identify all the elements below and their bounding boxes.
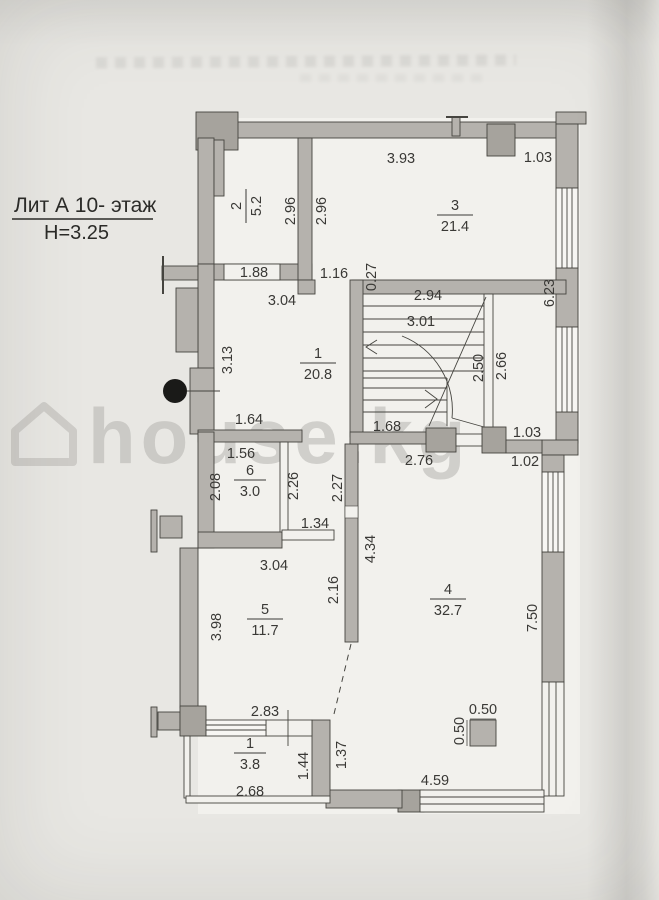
dim-hall-door: 1.16 [320, 266, 348, 282]
dim-stair-stub: 0.27 [364, 263, 380, 291]
dim-r4-top: 2.76 [405, 453, 433, 469]
dim-hall-top: 3.04 [268, 293, 296, 309]
room3-area: 21.4 [441, 219, 469, 235]
dim-stair-bottom: 1.68 [373, 419, 401, 435]
floor-title: Лит А 10- этаж [14, 194, 156, 217]
dim-r3-left: 2.96 [314, 197, 330, 225]
room6-number: 6 [246, 463, 254, 479]
dim-balcony-bottom: 2.68 [236, 784, 264, 800]
window-right-upper [556, 188, 578, 268]
room2-area: 5.2 [249, 196, 265, 216]
dim-r4-bottom-left: 1.37 [334, 741, 350, 769]
dim-stair-right-outer: 2.66 [494, 352, 510, 380]
balcony-number: 1 [246, 736, 254, 752]
room5-number: 5 [261, 602, 269, 618]
column-050 [470, 720, 496, 746]
dim-r4-right: 7.50 [525, 604, 541, 632]
room3-number: 3 [451, 198, 459, 214]
dim-r4-top-door: 1.03 [513, 425, 541, 441]
hole-punch-mark [163, 379, 187, 403]
dim-r6-top: 1.56 [227, 446, 255, 462]
dim-r3-top-b: 1.03 [524, 150, 552, 166]
dim-r6-left: 2.08 [208, 473, 224, 501]
dim-r4-bottom: 4.59 [421, 773, 449, 789]
dim-stair-depth: 3.01 [407, 314, 435, 330]
dim-r5-top: 3.04 [260, 558, 288, 574]
hall-number: 1 [314, 346, 322, 362]
house-icon [15, 406, 73, 462]
dim-r2-right: 2.96 [283, 197, 299, 225]
dim-stair-right-inner: 2.50 [471, 354, 487, 382]
dim-r3-top-a: 3.93 [387, 151, 415, 167]
window-right-lower [542, 472, 564, 552]
balcony-area: 3.8 [240, 757, 260, 773]
dim-column-width: 0.50 [469, 702, 497, 718]
room5-area: 11.7 [251, 623, 278, 639]
dim-right-wall-upper: 6.23 [542, 279, 558, 307]
glazing-corner-horizontal [420, 790, 544, 812]
ceiling-height: Н=3.25 [44, 222, 109, 244]
dim-r5-left: 3.98 [209, 613, 225, 641]
room6-area: 3.0 [240, 484, 260, 500]
dim-balcony-right: 1.44 [296, 752, 312, 780]
dim-stair-width: 2.94 [414, 288, 442, 304]
title-block: Лит А 10- этаж Н=3.25 [12, 194, 156, 244]
room2-number: 2 [229, 202, 245, 210]
floor-plan-drawing: house.kg [0, 0, 659, 900]
dim-r4-left-upper: 4.34 [363, 535, 379, 563]
room4-area: 32.7 [434, 603, 462, 619]
room4-number: 4 [444, 582, 452, 598]
dim-r4-top-right: 1.02 [511, 454, 539, 470]
dim-r2-bottom: 1.88 [240, 265, 268, 281]
window-right-mid [556, 327, 578, 412]
hall-area: 20.8 [304, 367, 332, 383]
dim-balcony-top: 2.83 [251, 704, 279, 720]
glazing-corner-vertical [542, 682, 564, 796]
dim-corridor-door: 1.34 [301, 516, 329, 532]
dim-hall-left: 3.13 [220, 346, 236, 374]
window-balcony [206, 720, 266, 736]
dim-r5-right: 2.16 [326, 576, 342, 604]
dim-hall-bottom: 1.64 [235, 412, 263, 428]
scanned-floor-plan-page: house.kg [0, 0, 659, 900]
dim-corridor-right: 2.27 [330, 474, 346, 502]
dim-r6-right: 2.26 [286, 472, 302, 500]
dim-column-height: 0.50 [452, 717, 468, 745]
